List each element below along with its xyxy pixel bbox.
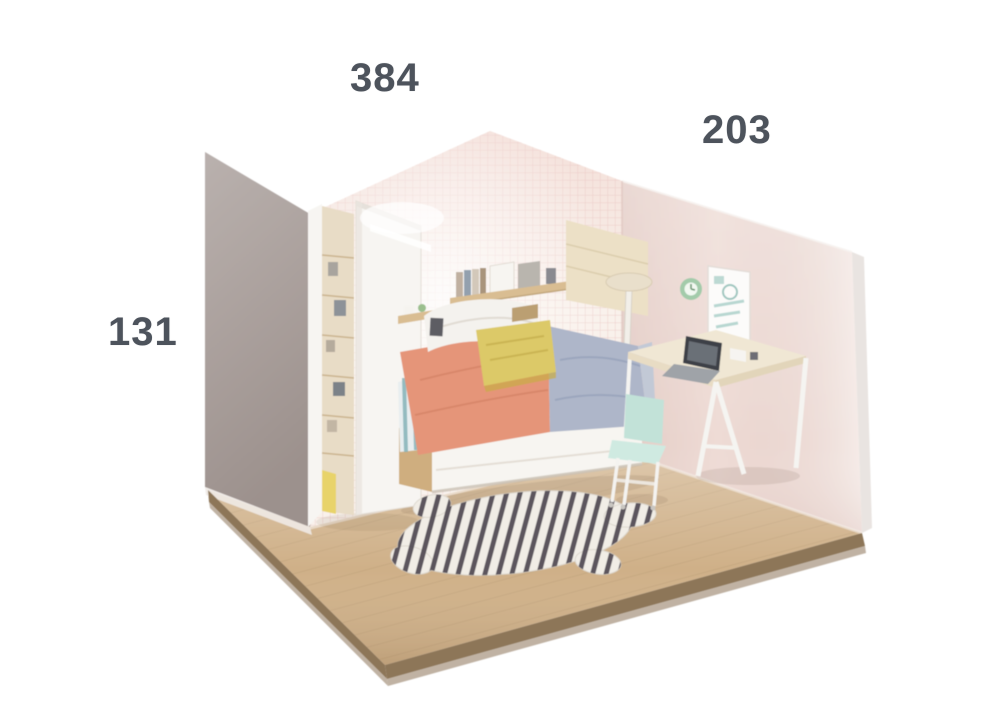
- book: [456, 272, 463, 297]
- dimension-label-depth: 203: [702, 108, 772, 153]
- wall-clock: [680, 278, 702, 300]
- desk-shadow: [696, 467, 800, 485]
- book: [472, 269, 479, 295]
- desk-deco: [750, 352, 758, 360]
- dimension-label-width: 384: [350, 56, 420, 101]
- wardrobe-side-panel: [308, 204, 322, 527]
- stool-leg: [624, 290, 632, 345]
- cushion-dark-accent: [430, 318, 444, 337]
- left-wall: [205, 152, 310, 528]
- room-illustration: [0, 0, 1000, 725]
- book: [480, 268, 486, 294]
- wardrobe-interior: [322, 206, 354, 515]
- shelf-deco: [546, 268, 556, 284]
- wardrobe-door-edge-shading: [356, 201, 362, 515]
- stool-seat: [606, 273, 652, 291]
- chair-back: [624, 394, 664, 444]
- desk-leg-crossbar: [702, 446, 738, 448]
- catalog-room-image: 384 203 131: [0, 0, 1000, 725]
- dimension-label-height: 131: [108, 310, 178, 355]
- wardrobe-yellow-accent: [322, 470, 336, 514]
- book: [464, 270, 471, 296]
- wardrobe-shadow: [316, 513, 420, 531]
- room-scene: [205, 131, 872, 686]
- left-wall-shading: [205, 152, 310, 528]
- wardrobe-light-glow: [360, 202, 444, 234]
